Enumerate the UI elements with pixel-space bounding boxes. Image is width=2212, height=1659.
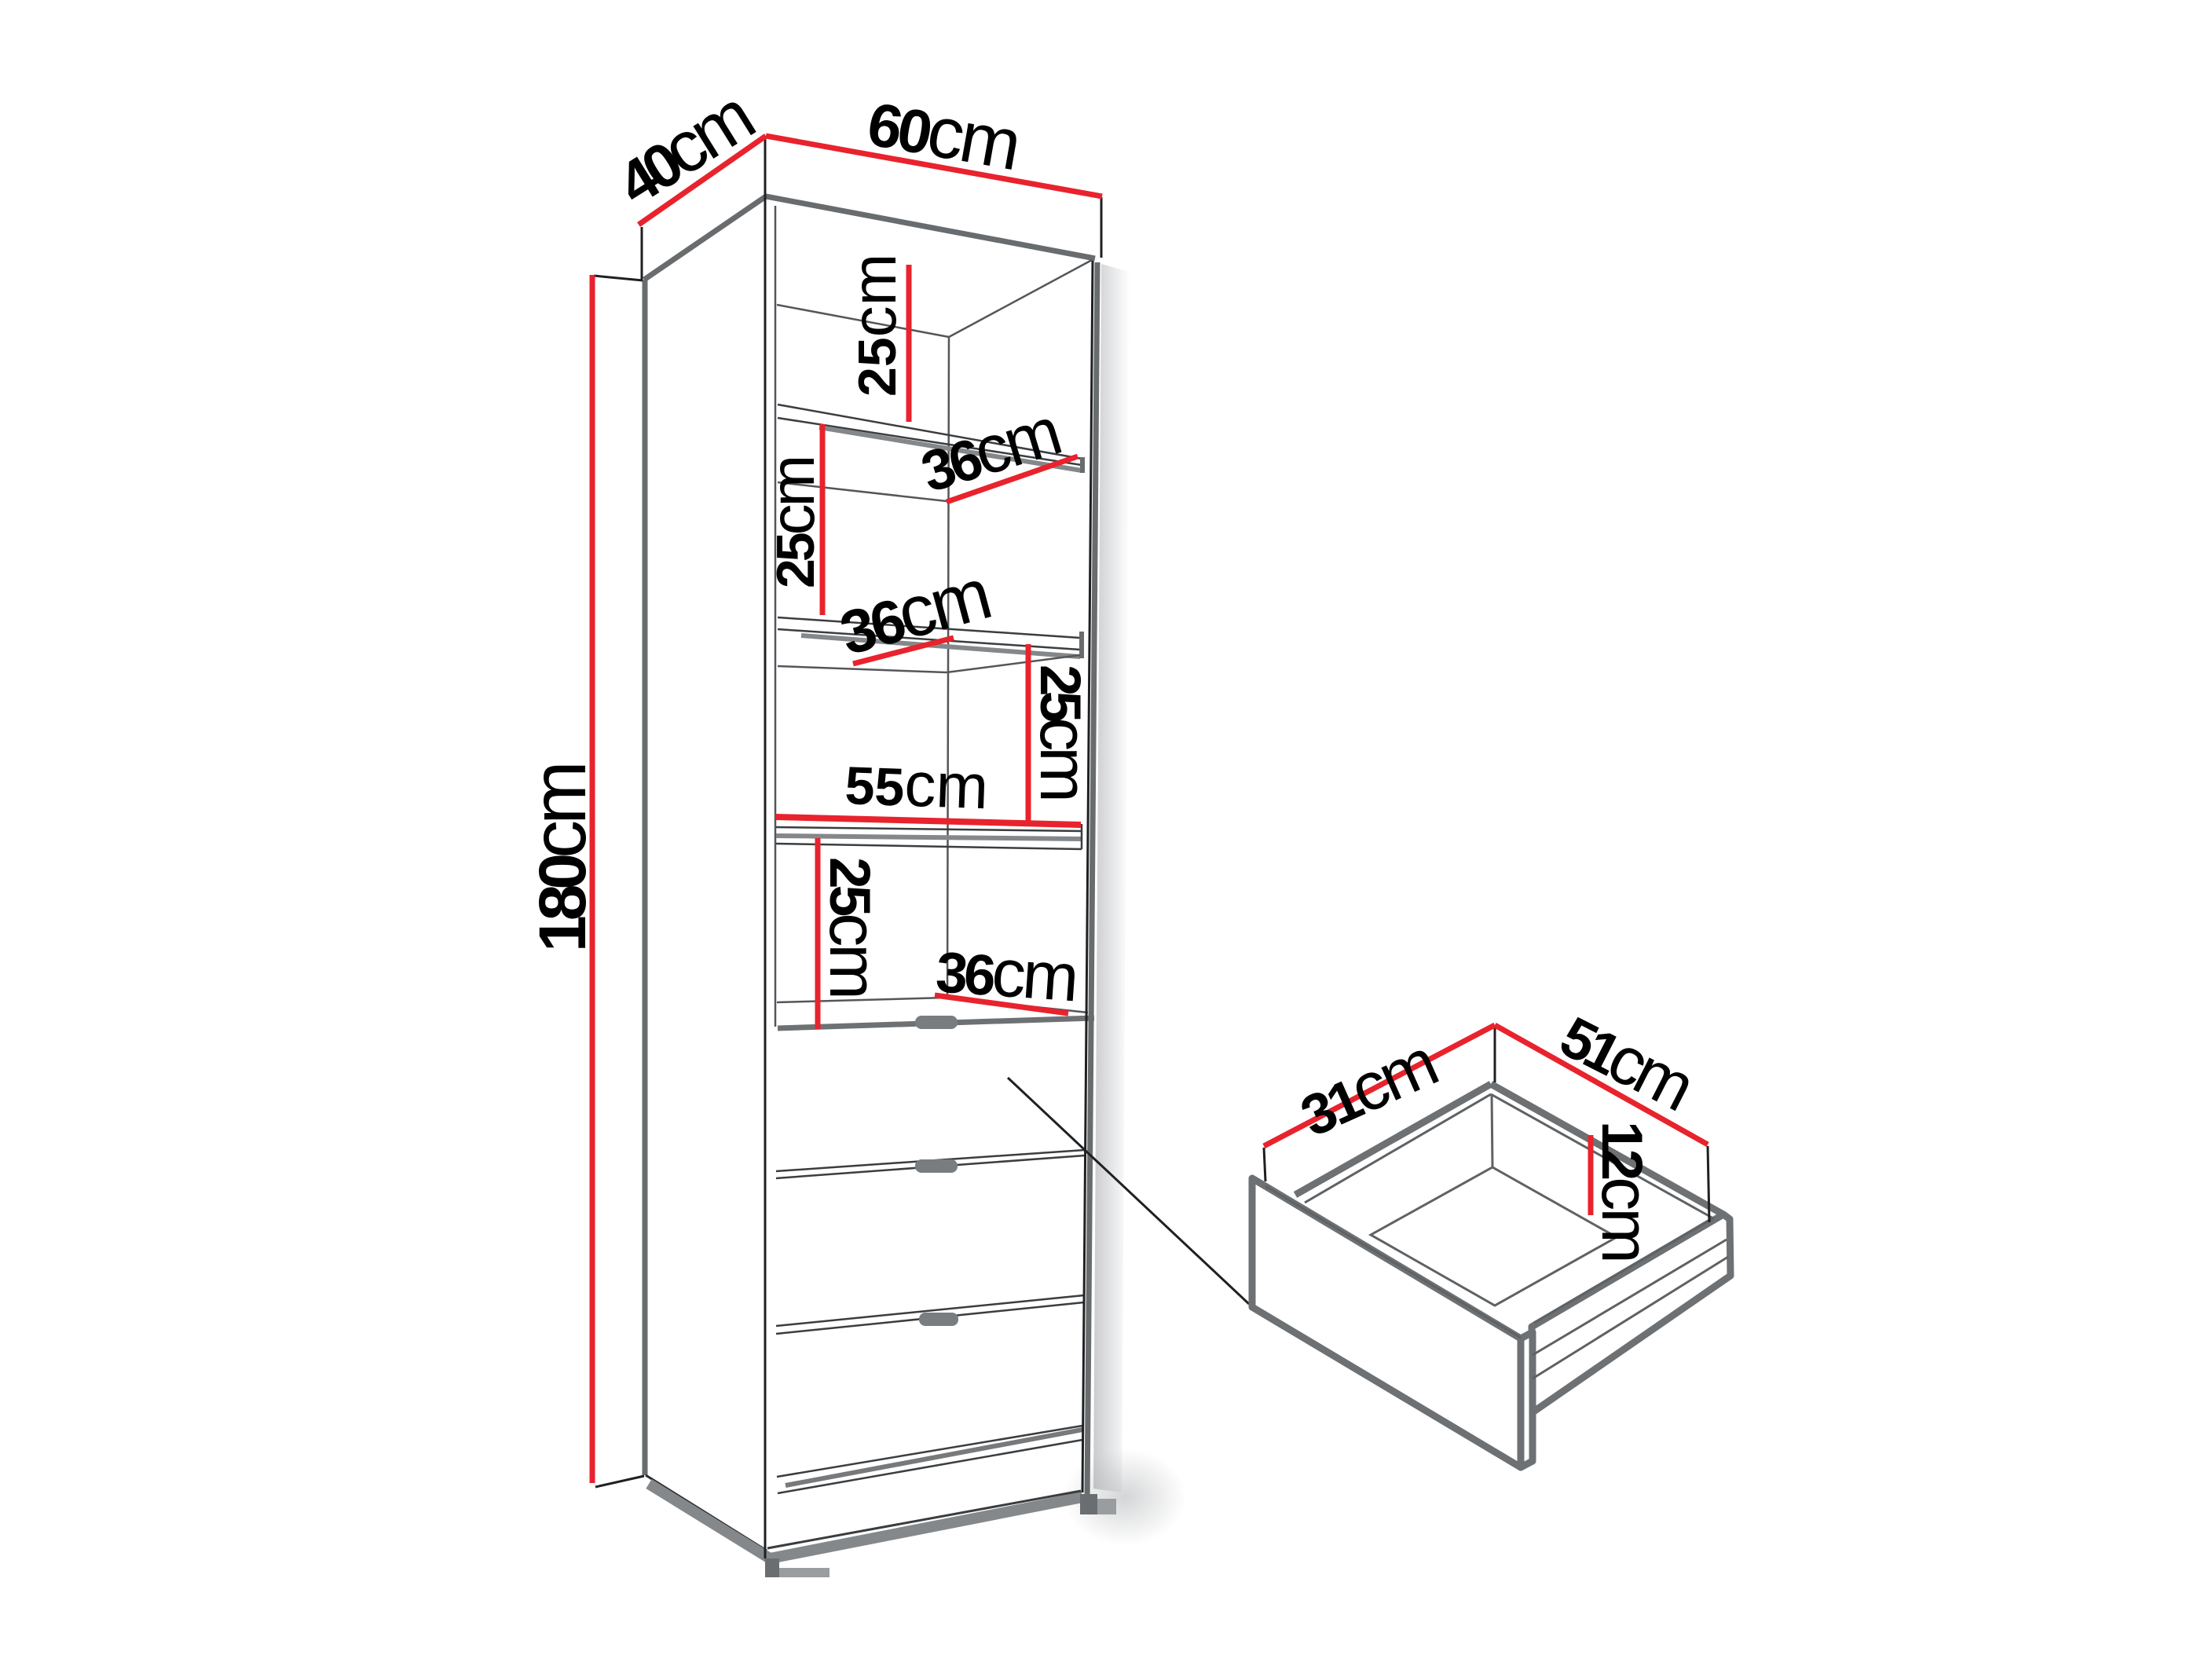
svg-text:25cm: 25cm <box>839 254 909 397</box>
svg-text:36cm: 36cm <box>934 931 1079 1016</box>
svg-text:180cm: 180cm <box>515 765 602 952</box>
svg-text:25cm: 25cm <box>757 458 827 588</box>
svg-text:55cm: 55cm <box>844 747 989 822</box>
svg-text:25cm: 25cm <box>815 857 891 997</box>
svg-text:25cm: 25cm <box>1026 665 1101 798</box>
svg-text:12cm: 12cm <box>1588 1121 1663 1261</box>
